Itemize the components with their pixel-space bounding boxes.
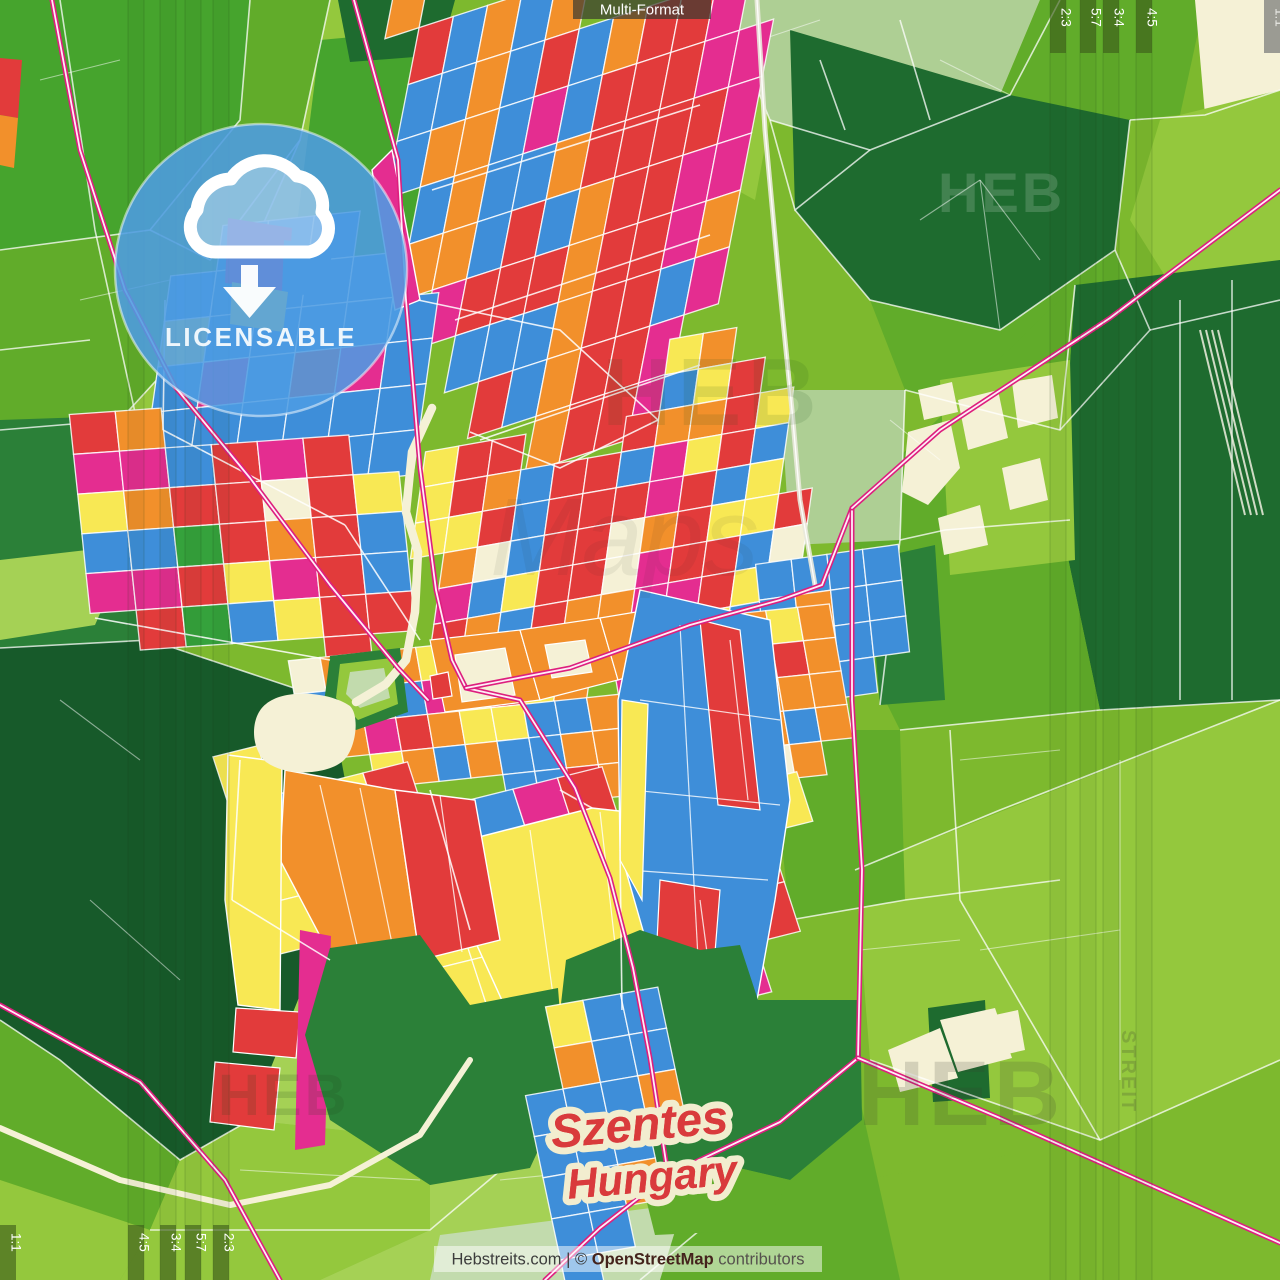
svg-text:Multi-Format: Multi-Format [600,2,685,19]
svg-text:HEB: HEB [218,1063,349,1128]
svg-text:2:3: 2:3 [222,1233,237,1252]
svg-text:3:4: 3:4 [1112,8,1127,27]
svg-text:4:5: 4:5 [1145,8,1160,27]
svg-text:5:7: 5:7 [1089,8,1104,27]
svg-text:HEB: HEB [858,1043,1064,1145]
svg-text:Maps: Maps [490,476,759,599]
svg-text:3:4: 3:4 [169,1233,184,1252]
svg-text:LICENSABLE: LICENSABLE [165,322,357,352]
svg-text:STREIT: STREIT [1117,1030,1139,1113]
svg-text:1:1: 1:1 [9,1233,24,1252]
svg-text:HEB: HEB [602,339,823,446]
svg-text:5:7: 5:7 [194,1233,209,1252]
svg-text:1:1: 1:1 [1273,8,1280,27]
svg-text:HEB: HEB [938,161,1065,224]
svg-text:4:5: 4:5 [137,1233,152,1252]
svg-text:Hebstreits.com | © OpenStreetM: Hebstreits.com | © OpenStreetMap contrib… [452,1251,805,1269]
svg-text:2:3: 2:3 [1059,8,1074,27]
